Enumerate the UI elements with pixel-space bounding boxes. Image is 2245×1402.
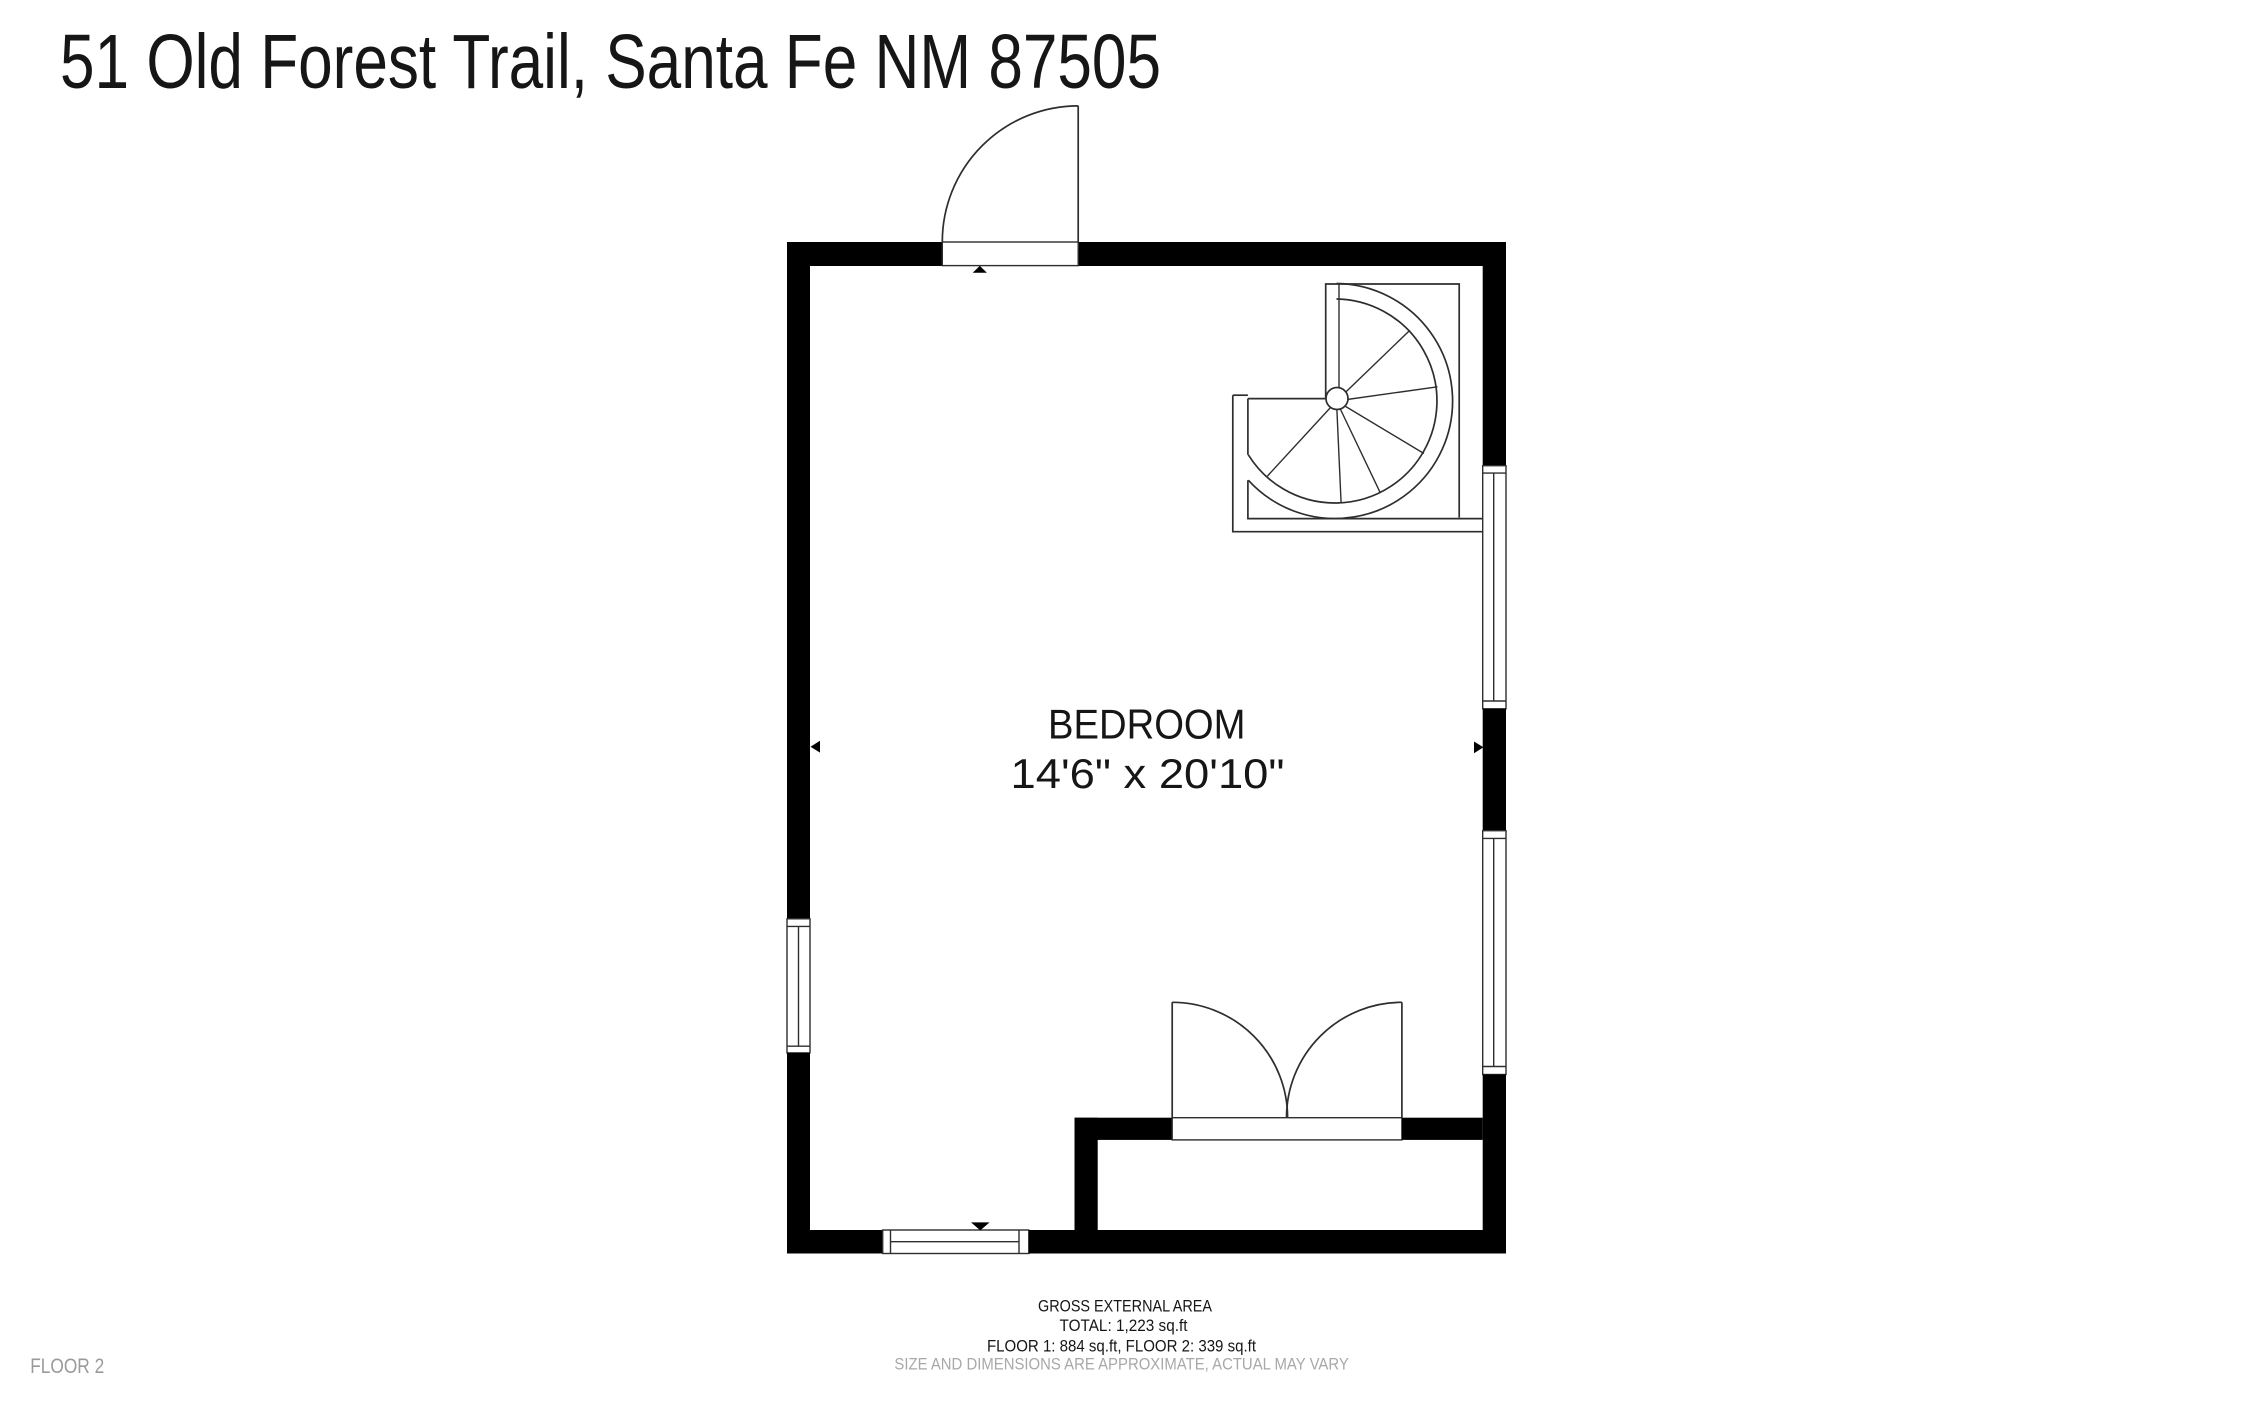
- svg-text:14'6" x 20'10": 14'6" x 20'10": [1011, 750, 1285, 797]
- svg-text:SIZE AND DIMENSIONS ARE APPROX: SIZE AND DIMENSIONS ARE APPROXIMATE, ACT…: [894, 1355, 1348, 1374]
- svg-text:FLOOR 1: 884 sq.ft, FLOOR 2: 3: FLOOR 1: 884 sq.ft, FLOOR 2: 339 sq.ft: [987, 1337, 1256, 1356]
- svg-text:51 Old Forest Trail, Santa Fe: 51 Old Forest Trail, Santa Fe NM 87505: [60, 19, 1161, 105]
- svg-text:BEDROOM: BEDROOM: [1048, 701, 1246, 748]
- svg-text:FLOOR 2: FLOOR 2: [30, 1354, 104, 1378]
- svg-text:TOTAL: 1,223 sq.ft: TOTAL: 1,223 sq.ft: [1060, 1316, 1188, 1335]
- svg-text:GROSS EXTERNAL AREA: GROSS EXTERNAL AREA: [1038, 1297, 1213, 1316]
